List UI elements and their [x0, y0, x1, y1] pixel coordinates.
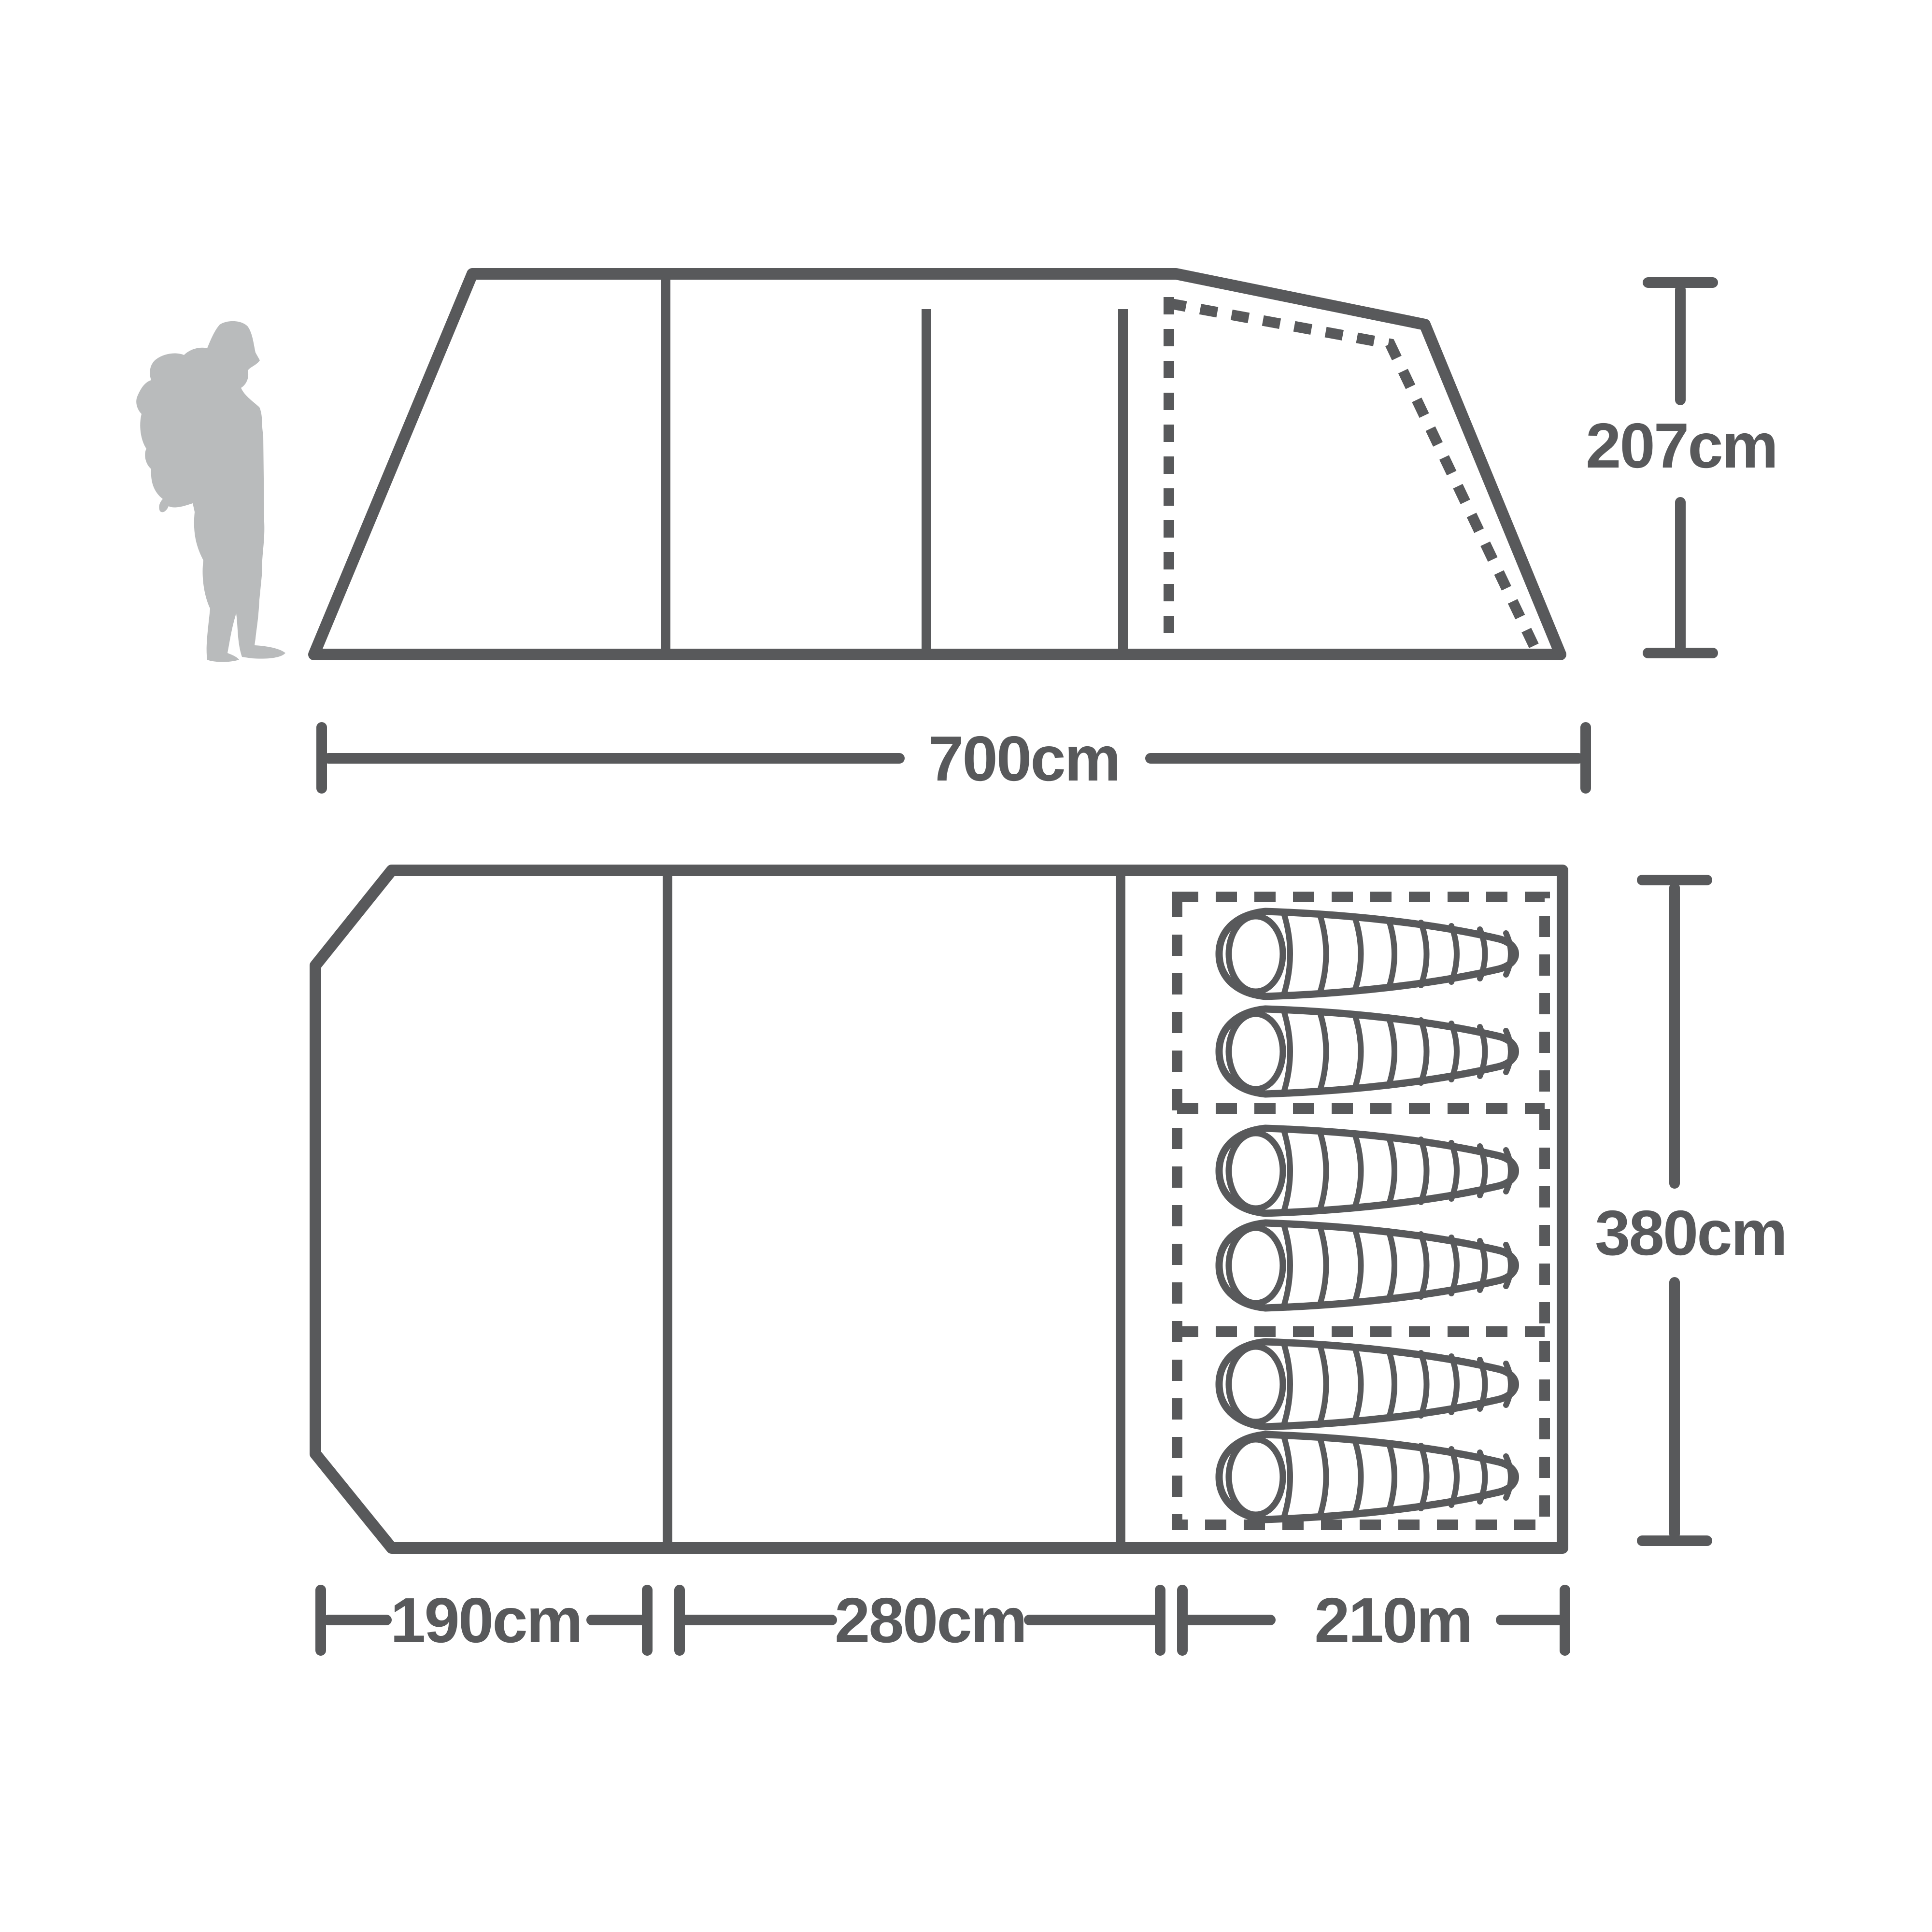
- bedroom-width-label: 210m: [1314, 1585, 1472, 1656]
- porch-width-label: 190cm: [390, 1585, 582, 1656]
- living-width-label: 280cm: [835, 1585, 1026, 1656]
- length-dimension-label: 700cm: [928, 723, 1120, 794]
- tent-dimensions-diagram: 700cm 207cm 380cm 190cm 280cm 210m: [0, 0, 1932, 1932]
- depth-dimension-label: 380cm: [1595, 1197, 1786, 1268]
- section-dimensions: 190cm 280cm 210m: [321, 1585, 1565, 1656]
- height-dimension-label: 207cm: [1586, 410, 1777, 481]
